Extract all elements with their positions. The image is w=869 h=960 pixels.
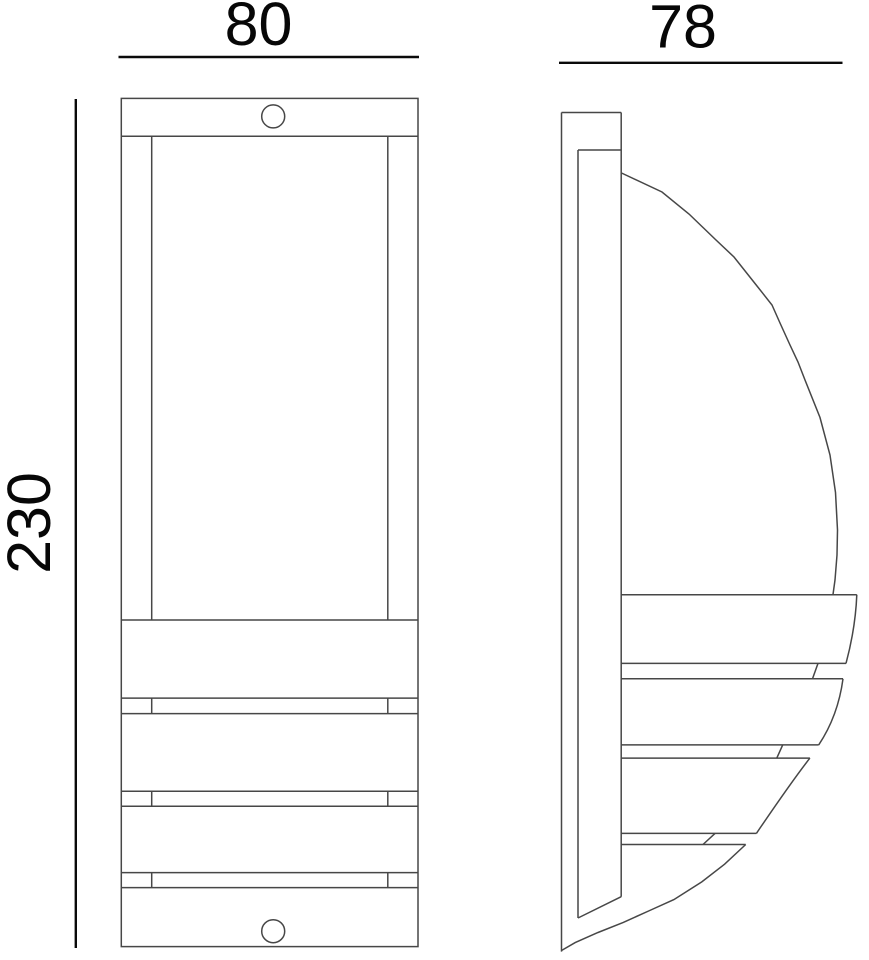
svg-text:78: 78 (649, 0, 717, 61)
svg-text:80: 80 (225, 0, 293, 58)
svg-text:230: 230 (0, 472, 63, 574)
